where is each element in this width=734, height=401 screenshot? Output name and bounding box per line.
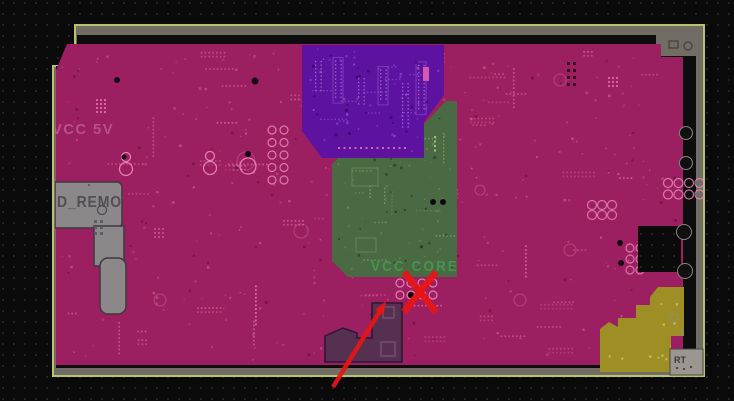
board-cutout [638, 226, 681, 272]
pcb-viewer-canvas: ND_REMO RT VCC 5V VCC CORE [0, 0, 734, 401]
vcc-core-label: VCC CORE [371, 258, 459, 275]
gnd-remote-label: ND_REMO [46, 194, 122, 211]
corner-ref-label: RT [674, 355, 686, 365]
vcc-5v-label: VCC 5V [52, 121, 114, 138]
pcb-layout-svg: ND_REMO RT VCC 5V VCC CORE [0, 0, 734, 401]
gnd-region-tab [100, 258, 126, 314]
corner-ref-block: RT [670, 349, 703, 375]
